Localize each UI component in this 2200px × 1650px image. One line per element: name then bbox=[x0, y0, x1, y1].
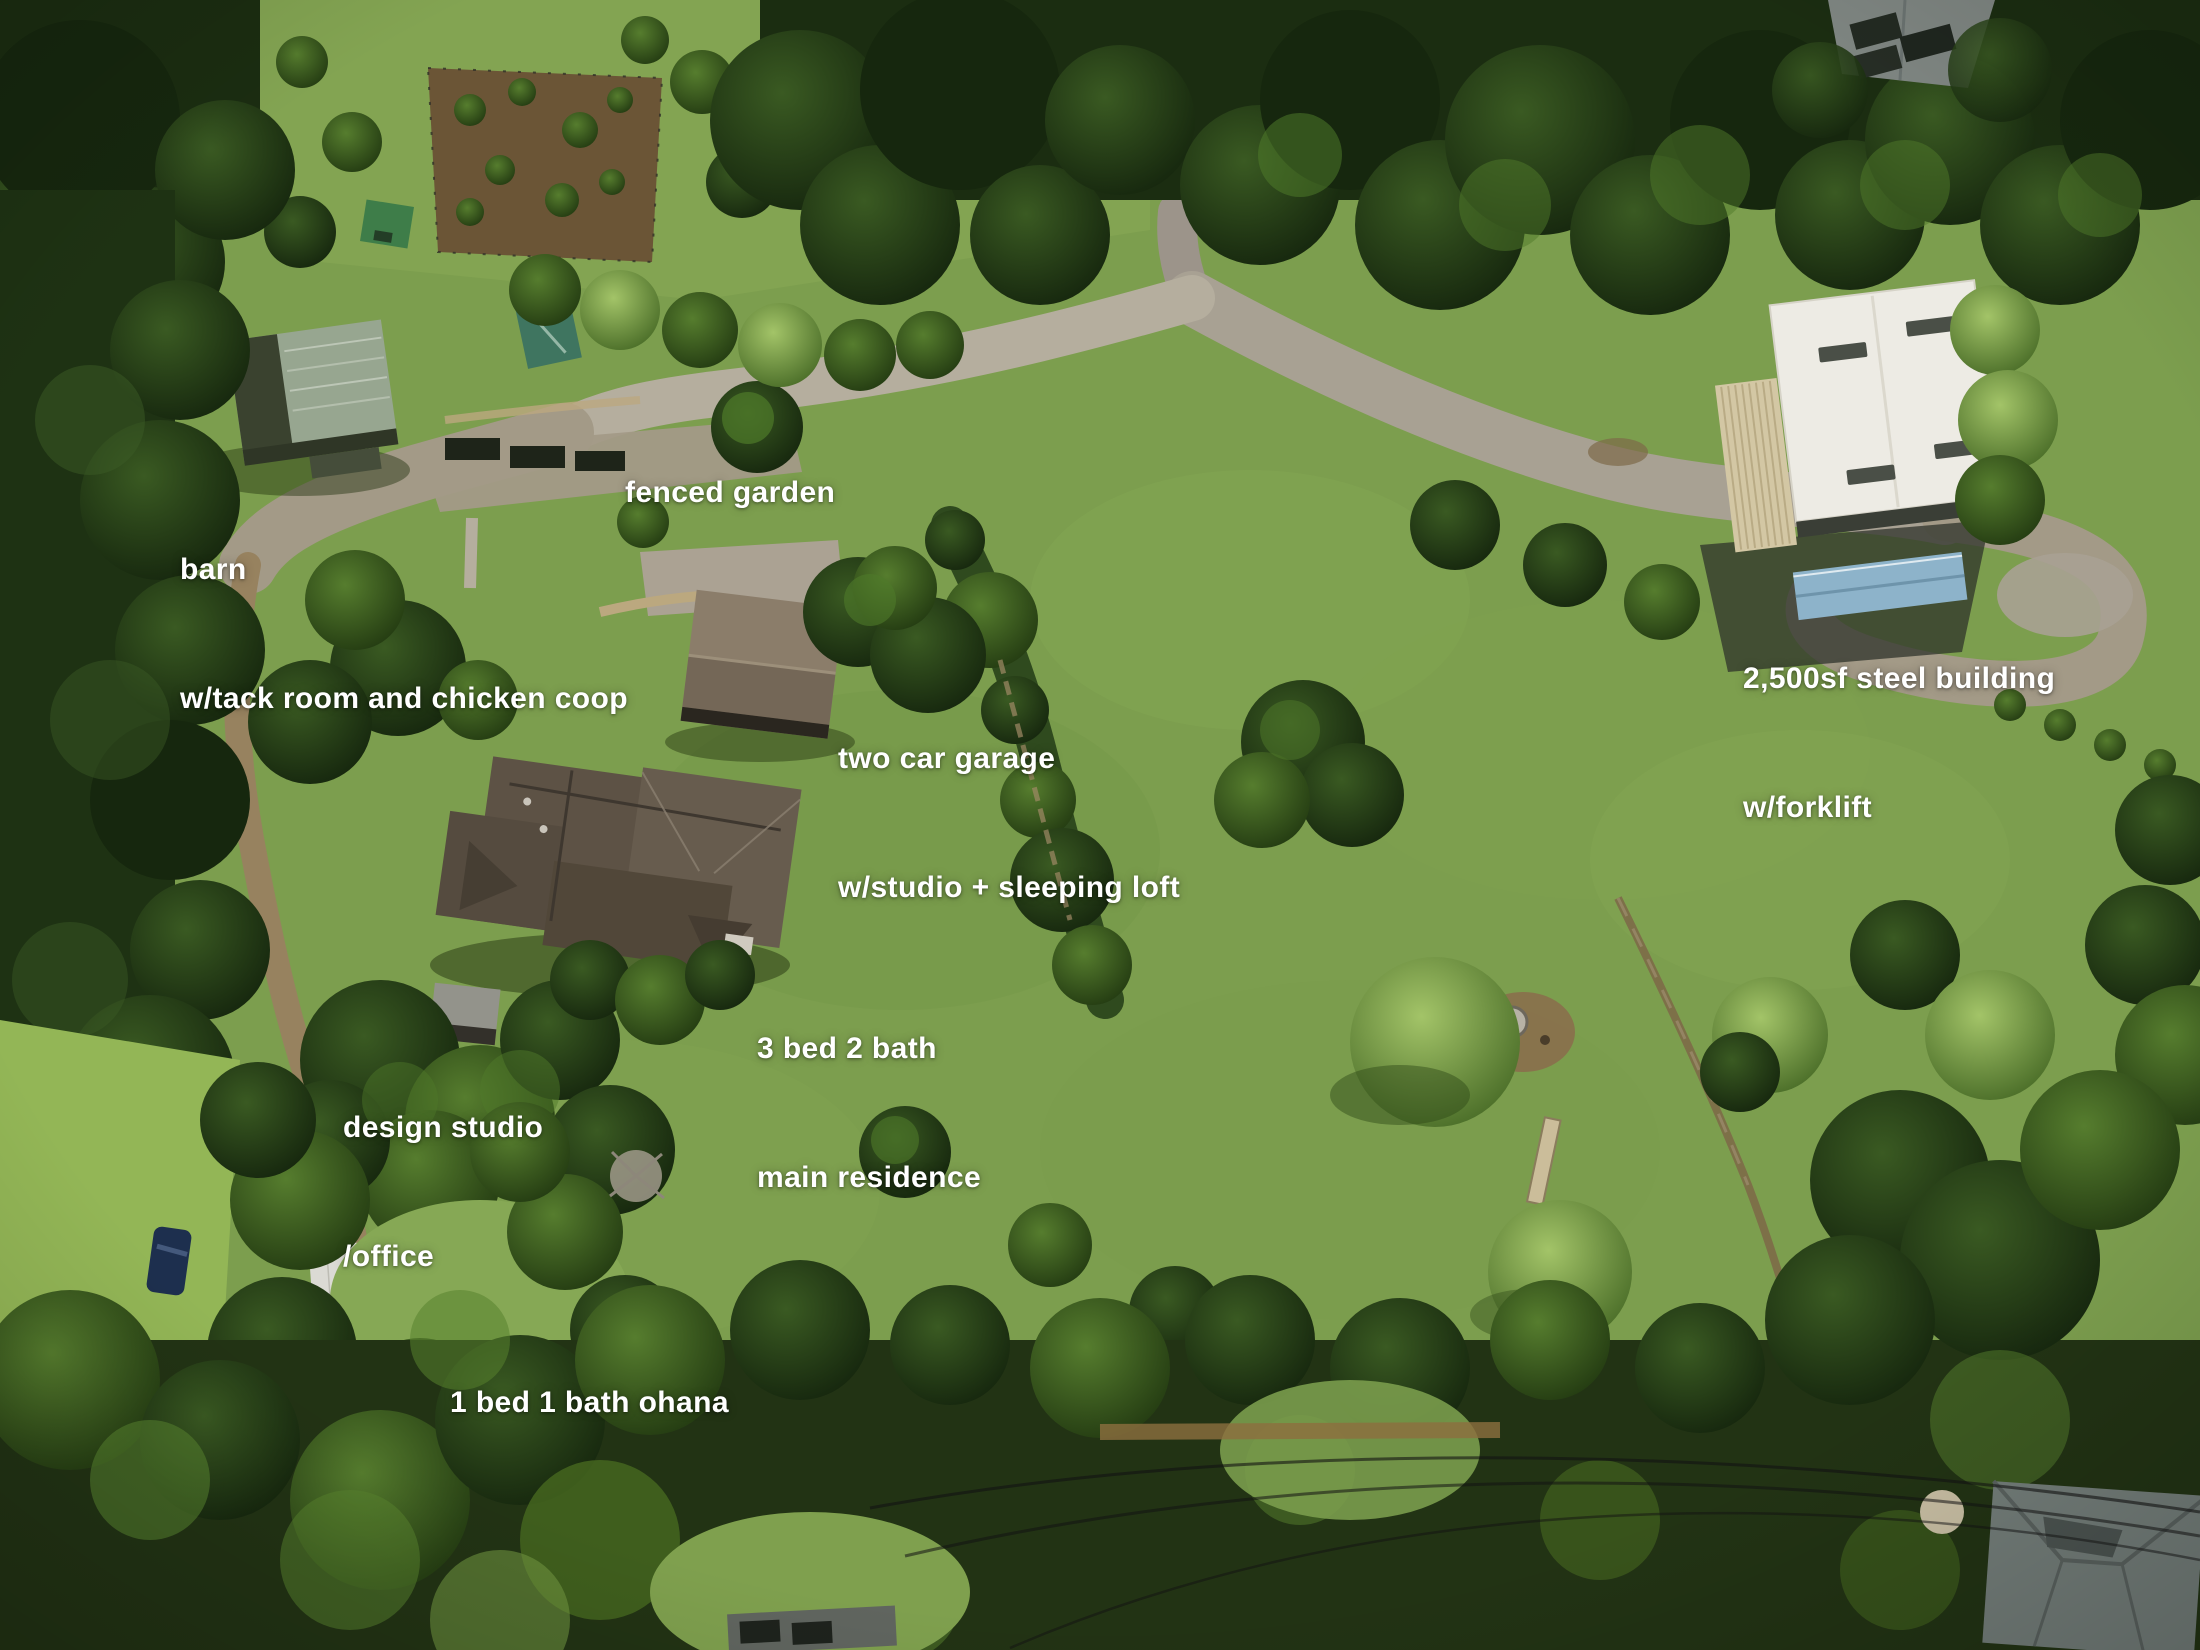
label-steel-building: 2,500sf steel building w/forklift bbox=[1743, 571, 2055, 915]
label-line: 2,500sf steel building bbox=[1743, 657, 2055, 700]
label-barn: barn w/tack room and chicken coop bbox=[180, 462, 628, 806]
label-line: w/forklift bbox=[1743, 786, 2055, 829]
label-line: design studio bbox=[343, 1106, 543, 1149]
label-line: two car garage bbox=[838, 737, 1180, 780]
label-line: w/studio + sleeping loft bbox=[838, 866, 1180, 909]
label-line: w/tack room and chicken coop bbox=[180, 677, 628, 720]
aerial-photo: fenced garden barn w/tack room and chick… bbox=[0, 0, 2200, 1650]
label-ohana: 1 bed 1 bath ohana bbox=[450, 1295, 729, 1510]
label-line: fenced garden bbox=[625, 471, 835, 514]
label-line: /office bbox=[343, 1235, 543, 1278]
label-line: main residence bbox=[757, 1156, 981, 1199]
label-fenced-garden: fenced garden bbox=[625, 385, 835, 600]
label-main-residence: 3 bed 2 bath main residence bbox=[757, 941, 981, 1285]
label-line: 3 bed 2 bath bbox=[757, 1027, 981, 1070]
label-line: barn bbox=[180, 548, 628, 591]
label-line: 1 bed 1 bath ohana bbox=[450, 1381, 729, 1424]
